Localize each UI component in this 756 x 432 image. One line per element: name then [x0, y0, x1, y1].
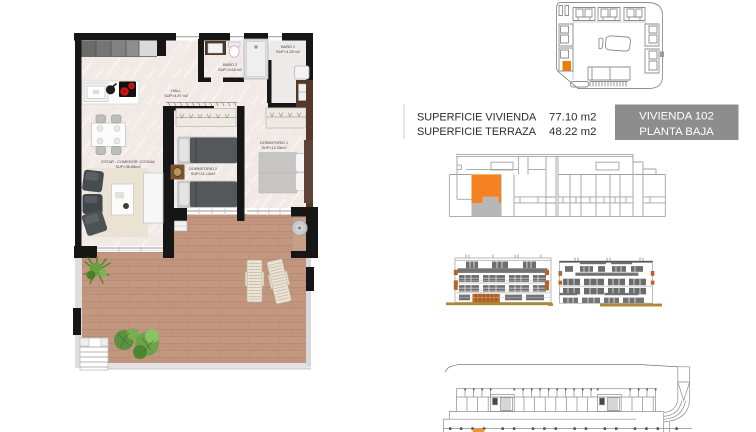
svg-text:SUPERFICIE VIVIENDA: SUPERFICIE VIVIENDA: [417, 112, 537, 124]
svg-text:77.10 m2: 77.10 m2: [549, 112, 597, 124]
svg-text:VIVIENDA 102: VIVIENDA 102: [639, 111, 714, 123]
svg-text:SUP=12.05m2: SUP=12.05m2: [261, 145, 287, 150]
svg-text:SUPERFICIE TERRAZA: SUPERFICIE TERRAZA: [417, 126, 537, 138]
svg-text:SUP=4.87 m2: SUP=4.87 m2: [164, 93, 189, 98]
svg-text:48.22 m2: 48.22 m2: [549, 126, 597, 138]
svg-text:PLANTA BAJA: PLANTA BAJA: [639, 126, 714, 138]
svg-text:SUP=3.68 m2: SUP=3.68 m2: [218, 67, 243, 72]
svg-text:SUP=4.28 m2: SUP=4.28 m2: [276, 49, 301, 54]
svg-text:SUP=36.65m2: SUP=36.65m2: [115, 164, 141, 169]
svg-text:SUP=11.14m2: SUP=11.14m2: [191, 171, 217, 176]
